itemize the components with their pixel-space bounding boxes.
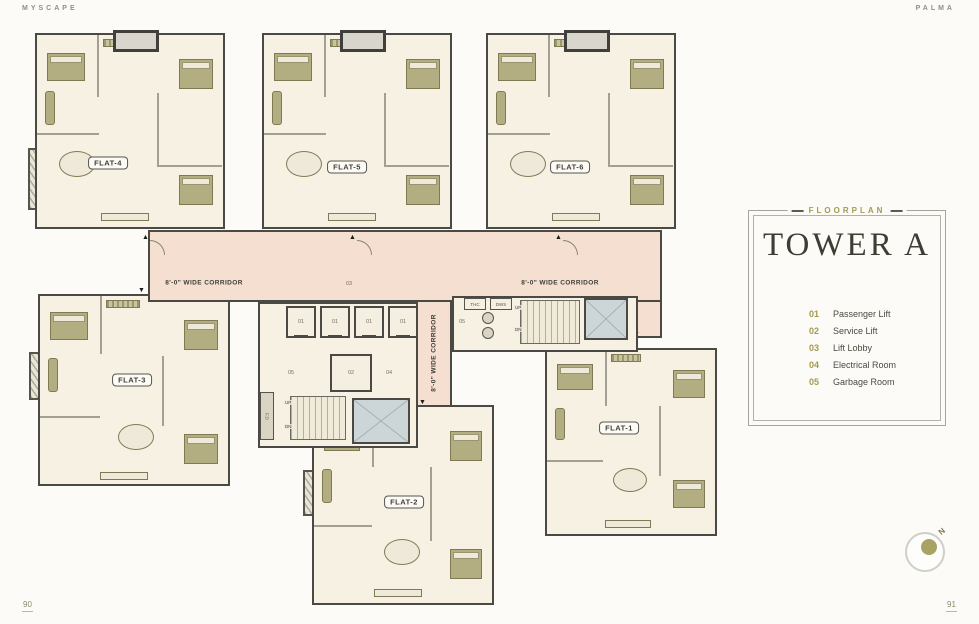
legend-label: Garbage Room	[833, 377, 895, 387]
stairs-up-label: UP	[514, 305, 522, 310]
legend: 01 Passenger Lift 02 Service Lift 03 Lif…	[809, 309, 896, 394]
furniture-bed	[50, 312, 88, 340]
entry-arrow-up: ▲	[142, 234, 149, 241]
legend-item: 02 Service Lift	[809, 326, 896, 336]
furniture-bed	[498, 53, 536, 81]
flat-6-wing: FLAT-6	[486, 33, 676, 229]
brand-palma: PALMA	[916, 5, 955, 12]
wall	[97, 35, 99, 97]
thc-shaft: THC	[464, 298, 486, 310]
wall	[384, 165, 449, 167]
compass-icon: N	[905, 532, 945, 572]
flat-4-wing: FLAT-4	[35, 33, 225, 229]
wall	[40, 416, 100, 418]
tower-title: TOWER A	[749, 227, 945, 264]
wall	[157, 93, 159, 167]
furniture-bed	[630, 59, 664, 89]
wall	[157, 165, 222, 167]
electrical-room-number: 04	[386, 370, 392, 376]
corridor-main	[148, 230, 662, 302]
passenger-lift-3: 01	[354, 306, 384, 338]
furniture-wardrobe	[611, 354, 641, 362]
entry-arrow-up: ▲	[349, 234, 356, 241]
fire-duct: F.D	[260, 392, 274, 440]
corridor-label-left: 8'-0" WIDE CORRIDOR	[165, 280, 243, 287]
wall	[548, 35, 550, 97]
wall	[314, 525, 372, 527]
passenger-lift-1: 01	[286, 306, 316, 338]
wall	[264, 133, 326, 135]
page-number-rule	[22, 611, 33, 612]
legend-item: 01 Passenger Lift	[809, 309, 896, 319]
stairs-down-label: DN	[514, 327, 523, 332]
furniture-sofa	[272, 91, 282, 125]
flat-1-label: FLAT-1	[599, 422, 639, 435]
page-number-left-text: 90	[23, 600, 32, 609]
furniture-wardrobe	[106, 300, 140, 308]
furniture-dining-table	[510, 151, 546, 177]
passenger-lift-4: 01	[388, 306, 418, 338]
lift-number: 01	[366, 319, 372, 325]
lift-number: 01	[298, 319, 304, 325]
furniture-bed	[557, 364, 593, 390]
service-lift: 02	[330, 354, 372, 392]
furniture-sofa	[555, 408, 565, 440]
dws-label: DWS	[496, 302, 507, 307]
legend-number: 05	[809, 377, 823, 387]
legend-label: Passenger Lift	[833, 309, 891, 319]
wall	[608, 93, 610, 167]
service-shaft-right	[584, 298, 628, 340]
page-number-right-text: 91	[947, 600, 956, 609]
legend-label: Service Lift	[833, 326, 878, 336]
garbage-chute	[482, 312, 494, 324]
wall	[384, 93, 386, 167]
fire-lift-shaft	[352, 398, 410, 444]
staircase-left	[290, 396, 346, 440]
furniture-kitchen-counter	[100, 472, 148, 480]
floorplan: FLAT-4 FLAT-5	[0, 0, 740, 624]
lift-number: 01	[400, 319, 406, 325]
corridor-label-right: 8'-0" WIDE CORRIDOR	[521, 280, 599, 287]
legend-number: 04	[809, 360, 823, 370]
page-number-right: 91	[946, 600, 957, 612]
furniture-bed	[184, 320, 218, 350]
staircase-right	[520, 300, 580, 344]
entry-arrow-down: ▼	[138, 287, 145, 294]
wall	[605, 350, 607, 406]
page-number-left: 90	[22, 600, 33, 612]
wall	[430, 467, 432, 541]
wall	[547, 460, 603, 462]
furniture-dining-table	[118, 424, 154, 450]
furniture-bed	[406, 59, 440, 89]
compass-dot	[921, 539, 937, 555]
flat-3-label: FLAT-3	[112, 374, 152, 387]
flat-5-label: FLAT-5	[327, 161, 367, 174]
fire-duct-label: F.D	[265, 413, 270, 420]
furniture-bed	[673, 480, 705, 508]
furniture-bed	[184, 434, 218, 464]
tower-info-panel: FLOORPLAN TOWER A 01 Passenger Lift 02 S…	[748, 210, 946, 426]
furniture-kitchen-counter	[328, 213, 376, 221]
thc-label: THC	[470, 302, 479, 307]
eyebrow-dash	[792, 210, 804, 212]
furniture-bed	[179, 59, 213, 89]
garbage-room-number-right: 05	[459, 319, 465, 325]
dws-shaft: DWS	[490, 298, 512, 310]
entry-arrow-down: ▼	[419, 399, 426, 406]
wall	[37, 133, 99, 135]
stairs-down-label: DN	[284, 424, 293, 429]
eyebrow-text: FLOORPLAN	[809, 206, 886, 215]
furniture-bed	[274, 53, 312, 81]
entrance-canopy	[564, 30, 610, 52]
legend-number: 03	[809, 343, 823, 353]
corridor-label-vertical: 8'-0" WIDE CORRIDOR	[431, 314, 438, 392]
wall	[162, 356, 164, 426]
furniture-dining-table	[384, 539, 420, 565]
furniture-sofa	[322, 469, 332, 503]
furniture-dining-table	[613, 468, 647, 492]
legend-number: 01	[809, 309, 823, 319]
furniture-sofa	[45, 91, 55, 125]
legend-item: 05 Garbage Room	[809, 377, 896, 387]
flat-1-wing: FLAT-1	[545, 348, 717, 536]
legend-number: 02	[809, 326, 823, 336]
eyebrow-dash	[890, 210, 902, 212]
lift-number: 02	[348, 370, 354, 376]
brochure-page: MYSCAPE PALMA FLAT-4	[0, 0, 979, 624]
entrance-canopy	[113, 30, 159, 52]
furniture-bed	[630, 175, 664, 205]
lift-number: 01	[332, 319, 338, 325]
wall	[324, 35, 326, 97]
furniture-kitchen-counter	[101, 213, 149, 221]
entrance-canopy	[340, 30, 386, 52]
legend-item: 03 Lift Lobby	[809, 343, 896, 353]
furniture-bed	[673, 370, 705, 398]
furniture-kitchen-counter	[552, 213, 600, 221]
wall	[608, 165, 673, 167]
legend-label: Electrical Room	[833, 360, 896, 370]
flat-4-label: FLAT-4	[88, 157, 128, 170]
flat-3-wing: FLAT-3	[38, 294, 230, 486]
furniture-bed	[47, 53, 85, 81]
furniture-sofa	[48, 358, 58, 392]
entry-arrow-up: ▲	[555, 234, 562, 241]
compass-north-label: N	[937, 526, 947, 537]
wall	[488, 133, 550, 135]
garbage-chute	[482, 327, 494, 339]
wall	[100, 296, 102, 354]
wall	[659, 406, 661, 476]
lift-lobby-number: 03	[346, 281, 352, 287]
flat-5-wing: FLAT-5	[262, 33, 452, 229]
legend-item: 04 Electrical Room	[809, 360, 896, 370]
furniture-bed	[450, 549, 482, 579]
furniture-sofa	[496, 91, 506, 125]
furniture-kitchen-counter	[374, 589, 422, 597]
legend-label: Lift Lobby	[833, 343, 872, 353]
furniture-bed	[450, 431, 482, 461]
furniture-dining-table	[286, 151, 322, 177]
page-number-rule	[946, 611, 957, 612]
furniture-kitchen-counter	[605, 520, 651, 528]
furniture-bed	[406, 175, 440, 205]
flat-6-label: FLAT-6	[550, 161, 590, 174]
stairs-up-label: UP	[284, 400, 292, 405]
furniture-bed	[179, 175, 213, 205]
flat-2-label: FLAT-2	[384, 496, 424, 509]
floorplan-eyebrow: FLOORPLAN	[788, 206, 907, 215]
passenger-lift-2: 01	[320, 306, 350, 338]
garbage-room-number-left: 05	[288, 370, 294, 376]
